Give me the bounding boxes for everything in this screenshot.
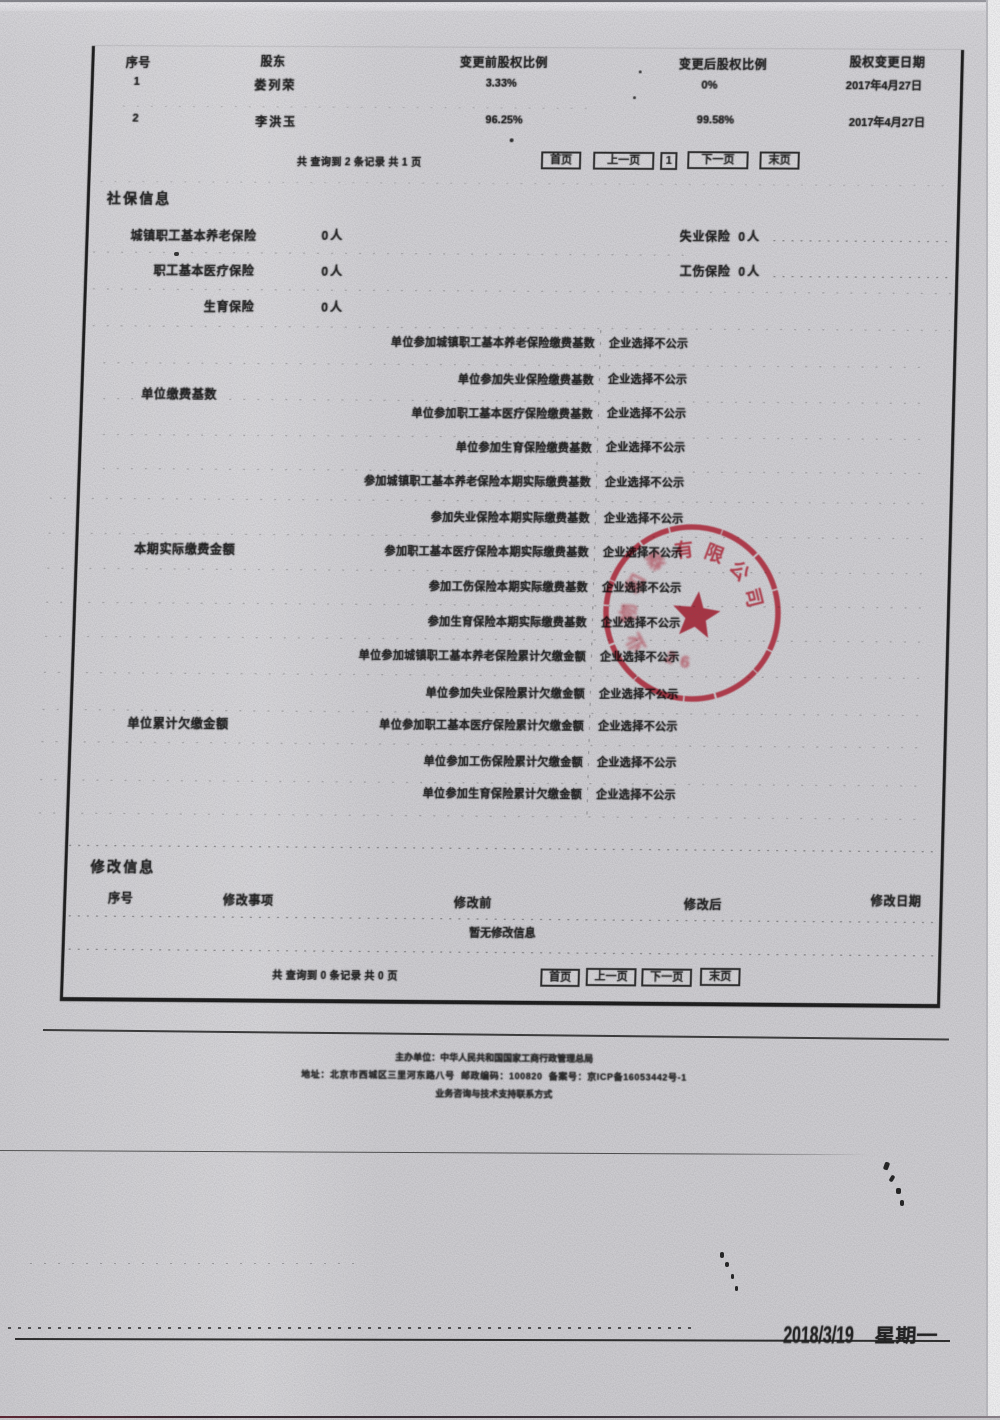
svg-text:限: 限: [701, 540, 727, 567]
svg-text:公: 公: [725, 557, 754, 586]
svg-text:物: 物: [617, 604, 640, 623]
svg-text:和: 和: [621, 570, 650, 597]
svg-text:6: 6: [679, 652, 691, 672]
svg-text:有: 有: [673, 537, 695, 562]
svg-text:泰: 泰: [640, 545, 670, 576]
svg-text:司: 司: [740, 586, 765, 610]
svg-text:2: 2: [662, 647, 679, 668]
svg-text:业: 业: [622, 629, 650, 656]
